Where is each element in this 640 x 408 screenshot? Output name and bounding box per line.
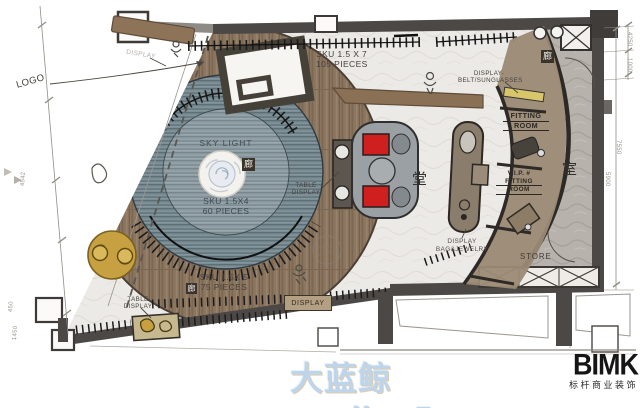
display-bag-line2: BAG&JEWELRY	[428, 246, 496, 254]
display-belt-line2: BELT/SUNGLASSES	[458, 77, 520, 84]
flower-ornament	[199, 151, 245, 197]
sku-top-label: SKU 1.5 X 7 105 PIECES	[316, 49, 368, 69]
store-label: STORE	[520, 252, 552, 261]
corridor-stamp-bottom: 廊	[186, 283, 197, 294]
floor-plan-canvas: LOGO DISPLAY SKU 1.5 X 7 105 PIECES SKY …	[0, 0, 640, 408]
display-boxed-label: DISPLAY	[284, 295, 332, 311]
room-char: 室	[562, 158, 577, 179]
dim-right-1000: 1000	[626, 58, 632, 73]
table-display-right-line1: TABLE	[286, 182, 326, 189]
dim-left-450: 450	[8, 301, 15, 312]
sku-top-line2: 105 PIECES	[316, 59, 368, 69]
fitting-line2: ROOM	[503, 122, 549, 132]
display-belt-label: DISPLAY- BELT/SUNGLASSES	[458, 70, 520, 85]
vip-line2: FITTING	[496, 178, 542, 187]
display-bag-line1: DISPLAY	[428, 238, 496, 246]
sku-center-line2: 60 PIECES	[184, 206, 268, 216]
dim-right-5900: 5900	[604, 172, 610, 187]
table-display-bottom-line2: DISPLAY	[116, 303, 160, 310]
brand-block: BIMK 标杆商业装饰	[569, 353, 638, 391]
fitting-room-label: FITTING ROOM	[503, 112, 549, 131]
dim-left-4542: 4542	[20, 171, 27, 186]
sku-center-line1: SKU 1.5X4	[184, 196, 268, 206]
dim-right-7550: 7550	[615, 140, 621, 155]
brand-logo: BIMK	[569, 352, 638, 378]
sku-center-label: SKU 1.5X4 60 PIECES	[184, 196, 268, 216]
hall-char: 堂	[412, 168, 427, 189]
corridor-char: 廊	[244, 160, 253, 169]
vip-line3: ROOM	[496, 186, 542, 195]
gold-table	[88, 231, 136, 279]
sku-bottom-line1: SKU 1.5X 5	[182, 272, 266, 282]
sku-top-line1: SKU 1.5 X 7	[316, 49, 368, 59]
entrance-logo-wall	[220, 40, 310, 110]
sky-light-label: SKY LIGHT	[186, 138, 266, 148]
dim-left-1450: 1450	[12, 325, 19, 340]
table-display-right-line2: DISPLAY	[286, 189, 326, 196]
dim-right-4250: 4250	[626, 32, 632, 47]
table-display-right-label: TABLE DISPLAY	[286, 182, 326, 197]
vip-line1: V.I.P. #	[496, 170, 542, 178]
corridor-char: 廊	[188, 285, 196, 293]
table-display-bottom-line1: TABLE	[116, 296, 160, 303]
table-display-bottom-label: TABLE DISPLAY	[116, 296, 160, 311]
corridor-char: 廊	[543, 52, 552, 61]
display-belt-line1: DISPLAY-	[458, 70, 520, 77]
corridor-stamp-top-right: 廊	[541, 50, 554, 63]
bag-table	[132, 313, 180, 340]
vip-fitting-room-label: V.I.P. # FITTING ROOM	[496, 170, 542, 195]
corridor-stamp-center: 廊	[242, 158, 255, 171]
display-bag-label: DISPLAY BAG&JEWELRY	[428, 238, 496, 253]
